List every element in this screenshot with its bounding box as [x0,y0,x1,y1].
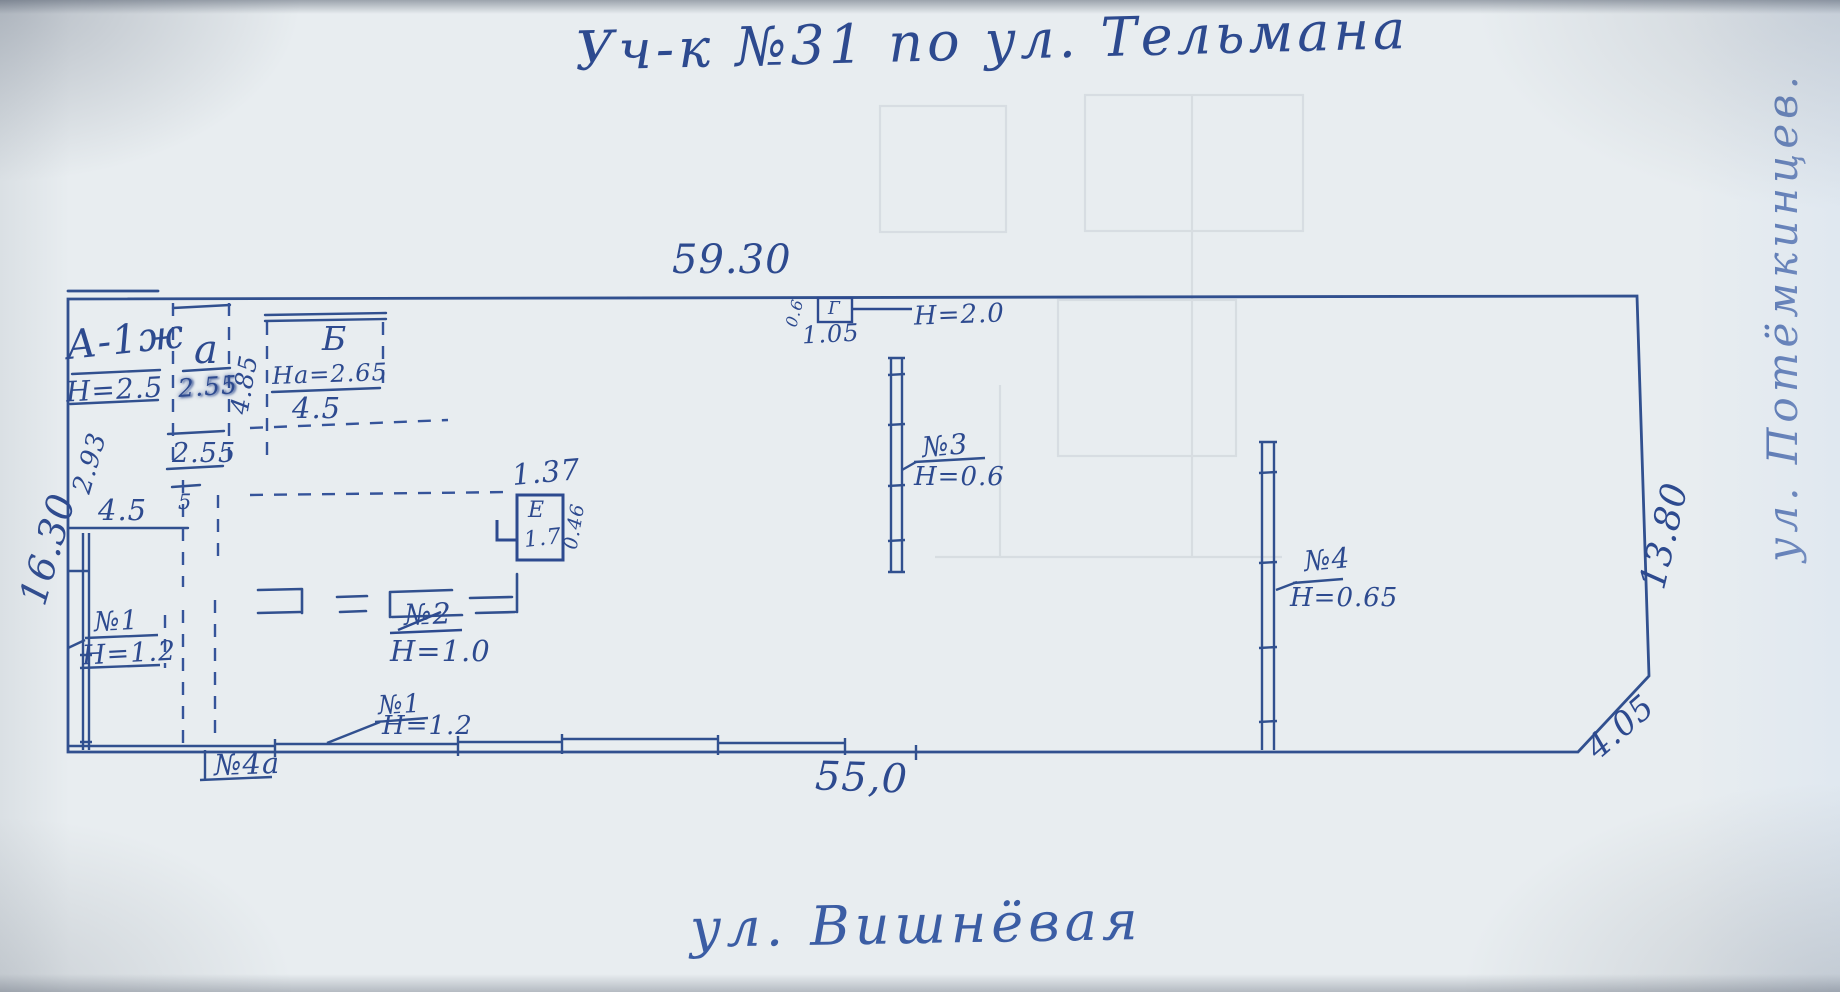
fence4-label: №4 [1303,544,1352,576]
fence-no1-bottom [68,718,916,760]
left-partition-dim: 4.5 [98,496,147,525]
block-b-label: Б [322,322,347,355]
fence2-label: №2 [404,599,453,630]
gate-width-dim: 1.05 [801,321,860,348]
fence1-left-label: №1 [93,607,139,636]
gate-height-dim: Н=2.0 [914,300,1006,329]
dashed-structure-fragments [258,574,517,617]
fence3-height: Н=0.6 [914,464,1005,490]
main-house-height: Н=2.5 [65,373,164,406]
annex-label: а [194,330,219,370]
fence1-bottom-height: Н=1.2 [382,713,473,739]
block-b-width: 4.5 [292,394,341,423]
fence3-label: №3 [921,430,970,462]
fence4a-label: №4а [214,749,281,780]
street-bottom-label: ул. Вишнёвая [690,894,1143,956]
street-right-label: ул. Потёмкинцев. [1762,71,1804,562]
fence4-height: Н=0.65 [1290,585,1398,611]
main-house-label: А-1ж [64,314,186,366]
shed-label: Е [528,500,545,522]
fence1-left-height: Н=1.2 [81,638,176,670]
plan-linework [0,0,1840,992]
scanned-plan-page: Уч-к №31 по ул. Тельмана 59.30 16.30 13.… [0,0,1840,992]
fence2-height: Н=1.0 [390,637,491,666]
annex-lower-dim: 2.55 [172,440,236,467]
shed-width-dim: 1.37 [511,455,582,490]
shed-area: 1.7 [523,526,563,552]
block-b-height: На=2.65 [272,360,389,388]
bottom-dimension: 55,0 [814,756,908,799]
gate-label: Г [828,300,841,318]
small-mark: 5 [178,492,192,513]
top-dimension: 59.30 [672,240,792,280]
